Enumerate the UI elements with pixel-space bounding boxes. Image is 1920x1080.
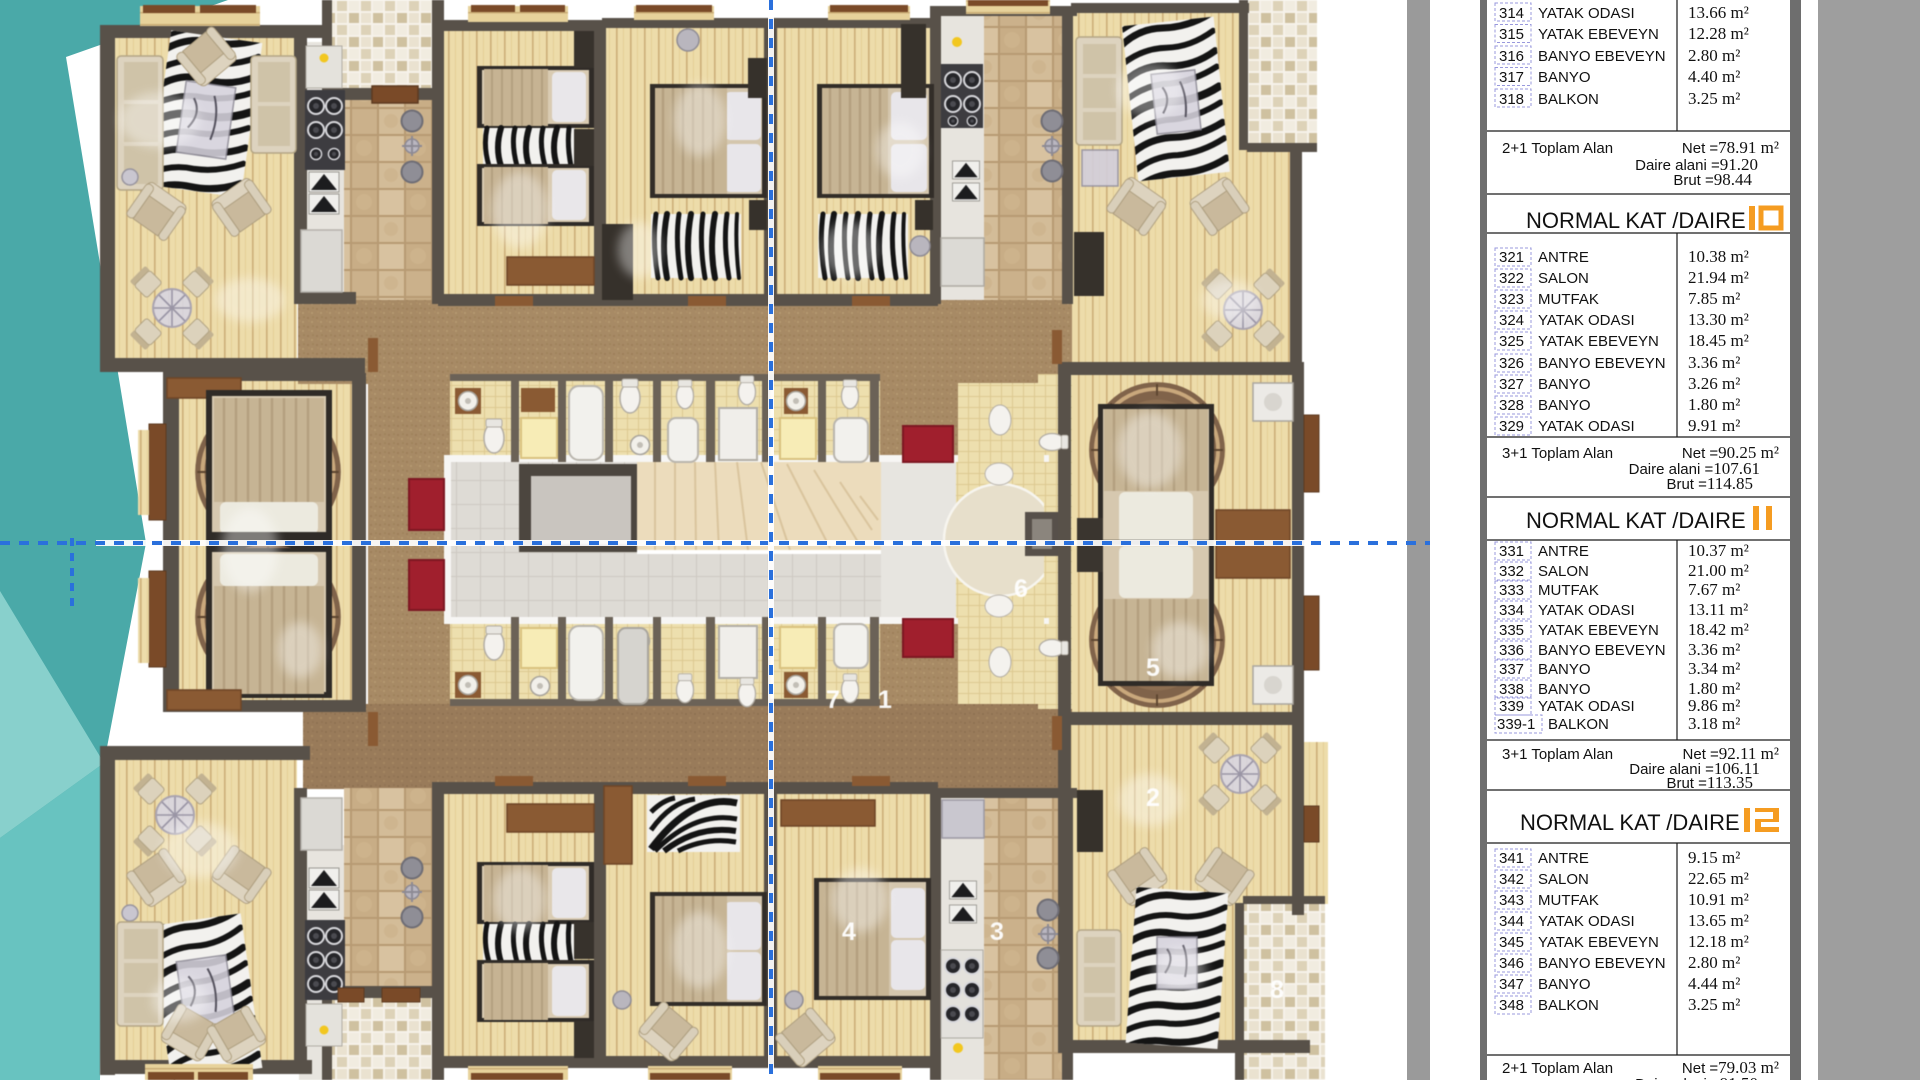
svg-text:2+1 Toplam Alan: 2+1 Toplam Alan xyxy=(1502,140,1613,157)
svg-text:7: 7 xyxy=(826,686,840,714)
svg-text:18.42 m²: 18.42 m² xyxy=(1688,620,1749,639)
svg-text:326: 326 xyxy=(1499,355,1524,372)
svg-text:10.91 m²: 10.91 m² xyxy=(1688,890,1749,909)
svg-text:BANYO EBEVEYN: BANYO EBEVEYN xyxy=(1538,355,1666,372)
svg-text:315: 315 xyxy=(1499,26,1524,43)
svg-text:21.94 m²: 21.94 m² xyxy=(1688,268,1749,287)
svg-text:YATAK ODASI: YATAK ODASI xyxy=(1538,418,1635,435)
svg-text:ANTRE: ANTRE xyxy=(1538,850,1589,867)
svg-text:328: 328 xyxy=(1499,397,1524,414)
svg-text:YATAK EBEVEYN: YATAK EBEVEYN xyxy=(1538,26,1659,43)
svg-text:4: 4 xyxy=(842,918,856,946)
svg-text:BANYO: BANYO xyxy=(1538,976,1591,993)
svg-text:YATAK ODASI: YATAK ODASI xyxy=(1538,602,1635,619)
svg-text:BANYO EBEVEYN: BANYO EBEVEYN xyxy=(1538,642,1666,659)
svg-text:3+1 Toplam Alan: 3+1 Toplam Alan xyxy=(1502,746,1613,763)
svg-text:BANYO: BANYO xyxy=(1538,376,1591,393)
svg-text:SALON: SALON xyxy=(1538,270,1589,287)
svg-text:2.80 m²: 2.80 m² xyxy=(1688,953,1740,972)
svg-text:YATAK EBEVEYN: YATAK EBEVEYN xyxy=(1538,934,1659,951)
svg-text:SALON: SALON xyxy=(1538,871,1589,888)
svg-text:344: 344 xyxy=(1499,913,1524,930)
svg-text:10.37 m²: 10.37 m² xyxy=(1688,541,1749,560)
svg-text:Brut =114.85: Brut =114.85 xyxy=(1666,474,1753,493)
svg-text:6: 6 xyxy=(1014,575,1028,603)
svg-text:343: 343 xyxy=(1499,892,1524,909)
svg-text:13.66 m²: 13.66 m² xyxy=(1688,3,1749,22)
svg-text:2.80 m²: 2.80 m² xyxy=(1688,46,1740,65)
svg-text:9.91 m²: 9.91 m² xyxy=(1688,416,1740,435)
svg-text:317: 317 xyxy=(1499,69,1524,86)
svg-text:342: 342 xyxy=(1499,871,1524,888)
svg-text:323: 323 xyxy=(1499,291,1524,308)
svg-text:NORMAL KAT /DAIRE: NORMAL KAT /DAIRE xyxy=(1520,810,1740,835)
svg-text:12.28 m²: 12.28 m² xyxy=(1688,24,1749,43)
svg-text:BANYO: BANYO xyxy=(1538,69,1591,86)
svg-text:MUTFAK: MUTFAK xyxy=(1538,582,1599,599)
svg-text:3+1 Toplam Alan: 3+1 Toplam Alan xyxy=(1502,445,1613,462)
svg-text:9.15 m²: 9.15 m² xyxy=(1688,848,1740,867)
svg-text:8: 8 xyxy=(1270,976,1284,1004)
svg-text:MUTFAK: MUTFAK xyxy=(1538,892,1599,909)
svg-text:322: 322 xyxy=(1499,270,1524,287)
svg-text:YATAK ODASI: YATAK ODASI xyxy=(1538,698,1635,715)
svg-text:325: 325 xyxy=(1499,333,1524,350)
svg-text:339: 339 xyxy=(1499,698,1524,715)
svg-text:BANYO: BANYO xyxy=(1538,397,1591,414)
svg-text:316: 316 xyxy=(1499,48,1524,65)
svg-text:2: 2 xyxy=(1146,784,1160,812)
svg-text:21.00 m²: 21.00 m² xyxy=(1688,561,1749,580)
svg-text:NORMAL KAT /DAIRE: NORMAL KAT /DAIRE xyxy=(1526,508,1746,533)
svg-text:336: 336 xyxy=(1499,642,1524,659)
svg-text:BANYO EBEVEYN: BANYO EBEVEYN xyxy=(1538,48,1666,65)
svg-text:7.67 m²: 7.67 m² xyxy=(1688,580,1740,599)
svg-text:334: 334 xyxy=(1499,602,1524,619)
svg-text:3.36 m²: 3.36 m² xyxy=(1688,353,1740,372)
svg-text:7.85 m²: 7.85 m² xyxy=(1688,289,1740,308)
svg-text:347: 347 xyxy=(1499,976,1524,993)
svg-text:BANYO EBEVEYN: BANYO EBEVEYN xyxy=(1538,955,1666,972)
svg-text:3.36 m²: 3.36 m² xyxy=(1688,640,1740,659)
svg-text:4.40 m²: 4.40 m² xyxy=(1688,67,1740,86)
svg-text:3.25 m²: 3.25 m² xyxy=(1688,89,1740,108)
svg-text:ANTRE: ANTRE xyxy=(1538,543,1589,560)
svg-text:4.44 m²: 4.44 m² xyxy=(1688,974,1740,993)
svg-text:12.18 m²: 12.18 m² xyxy=(1688,932,1749,951)
svg-text:2+1 Toplam Alan: 2+1 Toplam Alan xyxy=(1502,1060,1613,1077)
svg-text:SALON: SALON xyxy=(1538,563,1589,580)
svg-text:341: 341 xyxy=(1499,850,1524,867)
svg-text:331: 331 xyxy=(1499,543,1524,560)
svg-text:YATAK EBEVEYN: YATAK EBEVEYN xyxy=(1538,622,1659,639)
svg-text:324: 324 xyxy=(1499,312,1524,329)
svg-text:Brut =113.35: Brut =113.35 xyxy=(1666,773,1753,792)
svg-text:339-1: 339-1 xyxy=(1497,716,1535,733)
svg-text:3.25 m²: 3.25 m² xyxy=(1688,995,1740,1014)
svg-text:346: 346 xyxy=(1499,955,1524,972)
svg-text:Brut =98.44: Brut =98.44 xyxy=(1673,170,1752,189)
svg-text:1: 1 xyxy=(878,686,892,714)
svg-text:BALKON: BALKON xyxy=(1548,716,1609,733)
svg-text:YATAK EBEVEYN: YATAK EBEVEYN xyxy=(1538,333,1659,350)
svg-text:13.11 m²: 13.11 m² xyxy=(1688,600,1748,619)
svg-text:BANYO: BANYO xyxy=(1538,681,1591,698)
svg-text:BALKON: BALKON xyxy=(1538,91,1599,108)
svg-text:YATAK ODASI: YATAK ODASI xyxy=(1538,913,1635,930)
svg-text:BALKON: BALKON xyxy=(1538,997,1599,1014)
svg-text:5: 5 xyxy=(1146,654,1160,682)
svg-text:314: 314 xyxy=(1499,5,1524,22)
svg-text:13.65 m²: 13.65 m² xyxy=(1688,911,1749,930)
svg-text:321: 321 xyxy=(1499,249,1524,266)
svg-text:348: 348 xyxy=(1499,997,1524,1014)
svg-text:3.18 m²: 3.18 m² xyxy=(1688,714,1740,733)
svg-text:NORMAL KAT /DAIRE: NORMAL KAT /DAIRE xyxy=(1526,208,1746,233)
svg-text:13.30 m²: 13.30 m² xyxy=(1688,310,1749,329)
svg-text:333: 333 xyxy=(1499,582,1524,599)
svg-text:YATAK ODASI: YATAK ODASI xyxy=(1538,312,1635,329)
svg-text:9.86 m²: 9.86 m² xyxy=(1688,696,1740,715)
svg-text:337: 337 xyxy=(1499,661,1524,678)
svg-text:329: 329 xyxy=(1499,418,1524,435)
svg-text:3: 3 xyxy=(990,918,1004,946)
svg-text:327: 327 xyxy=(1499,376,1524,393)
svg-text:1.80 m²: 1.80 m² xyxy=(1688,395,1740,414)
svg-text:3.26 m²: 3.26 m² xyxy=(1688,374,1740,393)
svg-text:18.45 m²: 18.45 m² xyxy=(1688,331,1749,350)
svg-text:YATAK ODASI: YATAK ODASI xyxy=(1538,5,1635,22)
svg-text:318: 318 xyxy=(1499,91,1524,108)
svg-text:338: 338 xyxy=(1499,681,1524,698)
svg-text:345: 345 xyxy=(1499,934,1524,951)
svg-text:MUTFAK: MUTFAK xyxy=(1538,291,1599,308)
svg-text:332: 332 xyxy=(1499,563,1524,580)
svg-text:ANTRE: ANTRE xyxy=(1538,249,1589,266)
svg-text:335: 335 xyxy=(1499,622,1524,639)
svg-text:3.34 m²: 3.34 m² xyxy=(1688,659,1740,678)
svg-text:10.38 m²: 10.38 m² xyxy=(1688,247,1749,266)
svg-text:22.65 m²: 22.65 m² xyxy=(1688,869,1749,888)
svg-text:BANYO: BANYO xyxy=(1538,661,1591,678)
